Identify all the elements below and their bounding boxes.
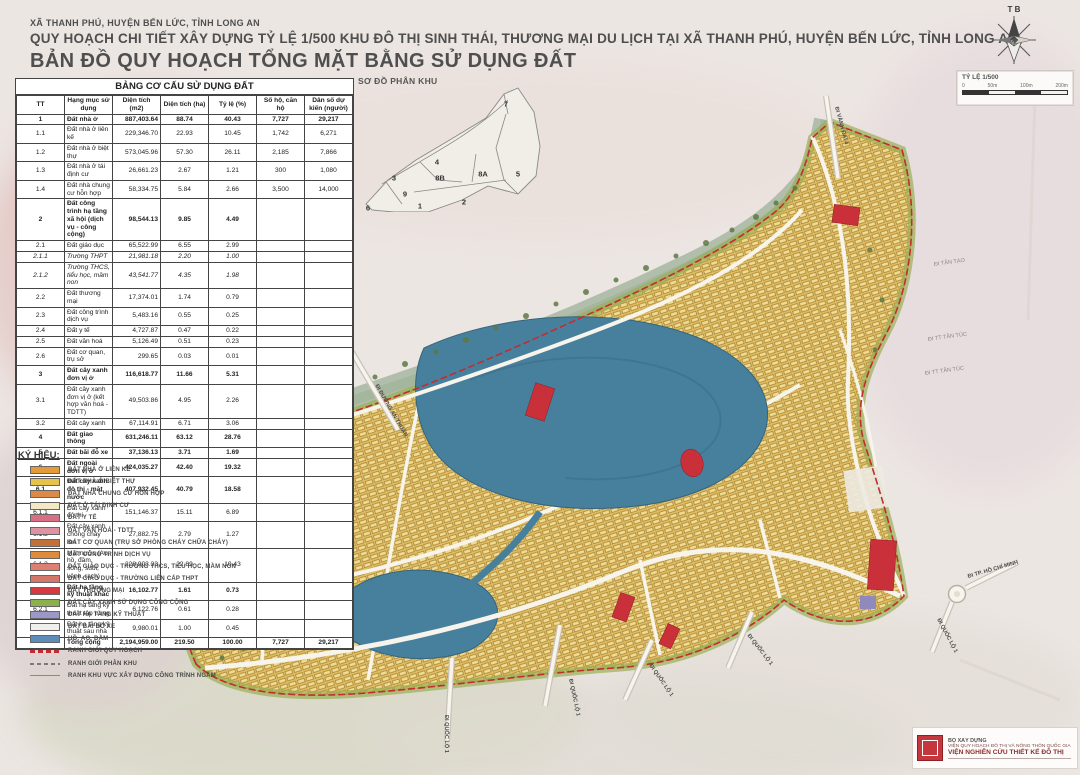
credits-rule (948, 758, 1071, 759)
legend-label: ĐẤT NHÀ Ở BIỆT THỰ (68, 479, 135, 485)
zone-number: 3 (392, 174, 396, 183)
zone-number: 5 (516, 170, 520, 179)
road-label: ĐI QUỐC LỘ 1 (443, 715, 449, 753)
table-cell: 116,618.77 (113, 366, 161, 385)
table-row: 1.3Đất nhà ở tái định cư26,661.232.671.2… (17, 162, 353, 181)
table-cell: Đất giao thông (65, 429, 113, 448)
table-cell: 11.66 (161, 366, 209, 385)
location-line: XÃ THANH PHÚ, HUYỆN BẾN LỨC, TỈNH LONG A… (30, 18, 1070, 28)
legend-line-swatch (30, 660, 60, 668)
table-cell: Đất cơ quan, trụ sở (65, 347, 113, 366)
institute-logo (917, 735, 943, 761)
table-cell: 4.35 (161, 262, 209, 288)
table-cell: 49,503.86 (113, 384, 161, 418)
zone-number: 4 (435, 158, 439, 167)
legend-swatch (30, 611, 60, 619)
table-cell: 2.67 (161, 162, 209, 181)
table-cell (305, 336, 353, 347)
inset-map: 12345678A8B9 (358, 86, 576, 212)
table-row: 2.6Đất cơ quan, trụ sở299.650.030.01 (17, 347, 353, 366)
table-cell (305, 458, 353, 477)
table-cell: 6.71 (161, 418, 209, 429)
table-cell: 0.03 (161, 347, 209, 366)
compass-rose: T B (988, 6, 1040, 66)
table-cell: 40.43 (209, 114, 257, 125)
legend-label: ĐẤT Y TẾ (68, 515, 97, 521)
legend-item: RANH GIỚI QUY HOẠCH (18, 645, 268, 657)
zone-number: 1 (418, 202, 422, 211)
legend-item: HỒ, AO, ĐẦM (18, 633, 268, 645)
legend-label: ĐẤT GIÁO DỤC - TRƯỜNG LIÊN CẤP THPT (68, 576, 198, 582)
table-cell: 1.3 (17, 162, 65, 181)
table-cell (305, 619, 353, 638)
legend-label: ĐẤT GIÁO DỤC - TRƯỜNG THCS, TIỂU HỌC, MẦ… (68, 564, 236, 570)
table-cell: Đất cây xanh đơn vị ở (kết hợp văn hoá -… (65, 384, 113, 418)
legend-item: ĐẤT Y TẾ (18, 512, 268, 524)
table-cell: 3 (17, 366, 65, 385)
table-cell: 3.1 (17, 384, 65, 418)
credits-institute: VIỆN QUY HOẠCH ĐÔ THỊ VÀ NÔNG THÔN QUỐC … (948, 744, 1071, 749)
legend-label: HỒ, AO, ĐẦM (68, 636, 108, 642)
table-cell (257, 384, 305, 418)
legend-item: RANH GIỚI PHÂN KHU (18, 658, 268, 670)
table-cell (305, 601, 353, 620)
table-cell: 5.31 (209, 366, 257, 385)
table-cell: 1,080 (305, 162, 353, 181)
table-row: 2.3Đất công trình dịch vụ5,483.160.550.2… (17, 307, 353, 326)
table-cell: 29,217 (305, 114, 353, 125)
table-cell (257, 252, 305, 263)
legend-label: RANH KHU VỰC XÂY DỰNG CÔNG TRÌNH NGẦM (68, 673, 216, 679)
table-cell (305, 241, 353, 252)
legend-label: RANH GIỚI PHÂN KHU (68, 661, 137, 667)
table-cell: 0.25 (209, 307, 257, 326)
table-cell: 2.20 (161, 252, 209, 263)
table-cell: Đất nhà chung cư hỗn hợp (65, 180, 113, 199)
table-cell (257, 418, 305, 429)
legend-label: ĐẤT BÃI ĐỖ XE (68, 624, 115, 630)
table-cell (305, 429, 353, 448)
title-block: XÃ THANH PHÚ, HUYỆN BẾN LỨC, TỈNH LONG A… (30, 18, 1070, 73)
table-cell: 6.55 (161, 241, 209, 252)
table-row: 4Đất giao thông631,246.1163.1228.76 (17, 429, 353, 448)
table-row: 2.5Đất văn hoá5,126.490.510.23 (17, 336, 353, 347)
planning-map-page: ĐI VÀNH ĐAI 4ĐI ĐƯỜNG AN THUẬNĐI TÂN TẠO… (0, 0, 1080, 775)
table-cell: Trường THPT (65, 252, 113, 263)
table-cell: 2.3 (17, 307, 65, 326)
table-cell: 21,981.18 (113, 252, 161, 263)
column-header: Diện tích (m2) (113, 96, 161, 115)
table-cell: 2.1 (17, 241, 65, 252)
legend-swatch (30, 478, 60, 486)
legend-label: ĐẤT CÂY XANH SỬ DỤNG CÔNG CỘNG (68, 600, 189, 606)
table-cell: 1.2 (17, 143, 65, 162)
table-row: 1.2Đất nhà ở biệt thự573,045.9657.3026.1… (17, 143, 353, 162)
table-row: 3.2Đất cây xanh67,114.916.713.06 (17, 418, 353, 429)
table-cell: 631,246.11 (113, 429, 161, 448)
table-cell: 98,544.13 (113, 199, 161, 241)
table-cell: Đất nhà ở liên kế (65, 125, 113, 144)
legend-label: ĐẤT CÔNG TRÌNH DỊCH VỤ (68, 552, 151, 558)
table-cell: 4 (17, 429, 65, 448)
table-cell: Đất công trình dịch vụ (65, 307, 113, 326)
legend-swatch (30, 490, 60, 498)
table-cell (305, 418, 353, 429)
table-cell (305, 477, 353, 503)
legend-item: ĐẤT CÂY XANH SỬ DỤNG CÔNG CỘNG (18, 597, 268, 609)
table-cell: 1.21 (209, 162, 257, 181)
legend-label: ĐẤT NHÀ Ở LIÊN KẾ (68, 467, 131, 473)
table-cell (305, 347, 353, 366)
table-row: 1.4Đất nhà chung cư hỗn hợp58,334.755.84… (17, 180, 353, 199)
legend-label: ĐẤT CƠ QUAN (TRỤ SỞ PHÒNG CHÁY CHỮA CHÁY… (68, 540, 228, 546)
table-cell: 3,500 (257, 180, 305, 199)
table-cell: 1.74 (161, 289, 209, 308)
table-cell: 10.45 (209, 125, 257, 144)
table-cell: Trường THCS, tiểu học, mầm non (65, 262, 113, 288)
table-row: 2.2Đất thương mại17,374.011.740.79 (17, 289, 353, 308)
table-cell: Đất văn hoá (65, 336, 113, 347)
column-header: TT (17, 96, 65, 115)
legend-item: ĐẤT GIÁO DỤC - TRƯỜNG LIÊN CẤP THPT (18, 573, 268, 585)
table-cell: 4.49 (209, 199, 257, 241)
compass-letters: T B (988, 6, 1040, 14)
legend-item: ĐẤT THƯƠNG MẠI (18, 585, 268, 597)
table-cell: 887,403.64 (113, 114, 161, 125)
zoning-inset: SƠ ĐỒ PHÂN KHU 12345678A8B9 (358, 76, 576, 216)
table-cell: 58,334.75 (113, 180, 161, 199)
legend-item: ĐẤT Ở TÁI ĐỊNH CƯ (18, 500, 268, 512)
table-cell (257, 336, 305, 347)
table-cell: 7,866 (305, 143, 353, 162)
table-cell: Đất cây xanh (65, 418, 113, 429)
table-title: BẢNG CƠ CẤU SỬ DỤNG ĐẤT (16, 79, 353, 95)
zone-number: 9 (403, 190, 407, 199)
table-cell: 14,000 (305, 180, 353, 199)
table-cell (305, 448, 353, 459)
zone-number: 6 (366, 204, 370, 213)
legend-title: KÝ HIỆU: (18, 450, 268, 461)
table-cell (257, 289, 305, 308)
scale-tick: 100m (1020, 83, 1033, 89)
table-cell: 2.99 (209, 241, 257, 252)
legend-swatch (30, 551, 60, 559)
table-cell (305, 503, 353, 522)
table-row: 1Đất nhà ở887,403.6488.7440.437,72729,21… (17, 114, 353, 125)
utility-parcel (860, 596, 876, 609)
table-row: 2Đất công trình hạ tầng xã hội (dịch vụ … (17, 199, 353, 241)
legend-label: RANH GIỚI QUY HOẠCH (68, 648, 142, 654)
table-cell: 229,346.70 (113, 125, 161, 144)
legend-swatch (30, 539, 60, 547)
table-cell (257, 429, 305, 448)
table-cell: Đất nhà ở biệt thự (65, 143, 113, 162)
legend-label: ĐẤT HẠ TẦNG KỸ THUẬT (68, 612, 145, 618)
table-cell: 63.12 (161, 429, 209, 448)
legend-item: ĐẤT NHÀ Ở LIÊN KẾ (18, 464, 268, 476)
legend-item: ĐẤT CƠ QUAN (TRỤ SỞ PHÒNG CHÁY CHỮA CHÁY… (18, 537, 268, 549)
table-cell: 0.23 (209, 336, 257, 347)
scale-box: TỶ LỆ 1/500 050m100m200m (956, 70, 1074, 106)
table-cell (305, 384, 353, 418)
map-title: BẢN ĐỒ QUY HOẠCH TỔNG MẶT BẰNG SỬ DỤNG Đ… (30, 50, 1070, 73)
legend-item: ĐẤT VĂN HOÁ - TDTT (18, 524, 268, 536)
table-cell: 26.11 (209, 143, 257, 162)
table-cell: 2.1.2 (17, 262, 65, 288)
scale-tick: 200m (1055, 83, 1068, 89)
table-cell: 1 (17, 114, 65, 125)
table-cell: 57.30 (161, 143, 209, 162)
table-cell: Đất công trình hạ tầng xã hội (dịch vụ -… (65, 199, 113, 241)
legend-label: ĐẤT THƯƠNG MẠI (68, 588, 125, 594)
table-cell: Đất nhà ở (65, 114, 113, 125)
table-cell: Đất nhà ở tái định cư (65, 162, 113, 181)
table-cell (257, 326, 305, 337)
credits-block: BỘ XÂY DỰNG VIỆN QUY HOẠCH ĐÔ THỊ VÀ NÔN… (912, 727, 1078, 769)
table-cell: 5,126.49 (113, 336, 161, 347)
table-cell (305, 326, 353, 337)
table-cell: 6,271 (305, 125, 353, 144)
legend-item: ĐẤT HẠ TẦNG KỸ THUẬT (18, 609, 268, 621)
table-cell: 2,185 (257, 143, 305, 162)
table-cell (257, 307, 305, 326)
table-cell: 2.1.1 (17, 252, 65, 263)
table-row: 3Đất cây xanh đơn vị ở116,618.7711.665.3… (17, 366, 353, 385)
column-header: Tỷ lệ (%) (209, 96, 257, 115)
table-cell: 0.79 (209, 289, 257, 308)
table-cell: Đất cây xanh đơn vị ở (65, 366, 113, 385)
table-cell: 5,483.16 (113, 307, 161, 326)
table-cell: 65,522.99 (113, 241, 161, 252)
scale-title: TỶ LỆ 1/500 (962, 74, 1068, 81)
table-cell: Đất giáo dục (65, 241, 113, 252)
legend-label: ĐẤT NHÀ CHUNG CƯ HỖN HỢP (68, 491, 165, 497)
table-header: TTHạng mục sử dụngDiện tích (m2)Diện tíc… (17, 96, 353, 115)
column-header: Số hộ, căn hộ (257, 96, 305, 115)
column-header: Hạng mục sử dụng (65, 96, 113, 115)
table-row: 3.1Đất cây xanh đơn vị ở (kết hợp văn ho… (17, 384, 353, 418)
table-cell: 7,727 (257, 114, 305, 125)
scale-bar (962, 90, 1068, 95)
table-row: 2.1Đất giáo dục65,522.996.552.99 (17, 241, 353, 252)
legend-item: ĐẤT GIÁO DỤC - TRƯỜNG THCS, TIỂU HỌC, MẦ… (18, 561, 268, 573)
column-header: Diện tích (ha) (161, 96, 209, 115)
table-cell: 4.95 (161, 384, 209, 418)
table-row: 1.1Đất nhà ở liên kế229,346.7022.9310.45… (17, 125, 353, 144)
legend-swatch (30, 575, 60, 583)
table-cell (305, 262, 353, 288)
table-cell (305, 548, 353, 582)
scale-tick: 0 (962, 83, 965, 89)
legend-swatch (30, 623, 60, 631)
table-cell (305, 252, 353, 263)
table-cell: 29,217 (305, 638, 353, 649)
table-cell: 67,114.91 (113, 418, 161, 429)
legend: KÝ HIỆU: ĐẤT NHÀ Ở LIÊN KẾĐẤT NHÀ Ở BIỆT… (18, 450, 268, 682)
table-cell (305, 307, 353, 326)
project-title: QUY HOẠCH CHI TIẾT XÂY DỰNG TỶ LỆ 1/500 … (30, 31, 1070, 46)
north-arrow-icon (988, 14, 1040, 66)
legend-swatch (30, 466, 60, 474)
table-cell: 28.76 (209, 429, 257, 448)
table-cell: 2 (17, 199, 65, 241)
table-cell (305, 366, 353, 385)
table-cell: 1,742 (257, 125, 305, 144)
legend-swatch (30, 514, 60, 522)
legend-label: ĐẤT VĂN HOÁ - TDTT (68, 528, 134, 534)
table-cell: 2.6 (17, 347, 65, 366)
table-cell (305, 522, 353, 548)
table-cell: 2.4 (17, 326, 65, 337)
table-row: 2.1.1Trường THPT21,981.182.201.00 (17, 252, 353, 263)
table-cell: 1.98 (209, 262, 257, 288)
legend-item: ĐẤT NHÀ Ở BIỆT THỰ (18, 476, 268, 488)
legend-item: RANH KHU VỰC XÂY DỰNG CÔNG TRÌNH NGẦM (18, 670, 268, 682)
table-cell (305, 289, 353, 308)
table-cell: 0.51 (161, 336, 209, 347)
table-cell: 2.5 (17, 336, 65, 347)
zone-number: 8A (478, 170, 488, 179)
table-cell: 1.1 (17, 125, 65, 144)
legend-swatch (30, 563, 60, 571)
table-cell: 3.06 (209, 418, 257, 429)
scale-tick: 50m (988, 83, 998, 89)
table-cell: 299.65 (113, 347, 161, 366)
table-cell: 2.2 (17, 289, 65, 308)
table-cell: Đất y tế (65, 326, 113, 337)
table-cell (257, 241, 305, 252)
scale-ticks: 050m100m200m (962, 83, 1068, 89)
table-row: 2.1.2Trường THCS, tiểu học, mầm non43,54… (17, 262, 353, 288)
table-cell (257, 347, 305, 366)
zone-number: 8B (435, 174, 445, 183)
table-cell (305, 582, 353, 601)
table-cell: 0.47 (161, 326, 209, 337)
table-cell: 1.4 (17, 180, 65, 199)
legend-swatch (30, 587, 60, 595)
inset-sketch (358, 86, 576, 212)
table-cell: 9.85 (161, 199, 209, 241)
table-cell: 0.55 (161, 307, 209, 326)
table-cell (305, 199, 353, 241)
table-cell (257, 199, 305, 241)
table-cell: 26,661.23 (113, 162, 161, 181)
legend-swatch (30, 527, 60, 535)
table-cell: 3.2 (17, 418, 65, 429)
legend-item: ĐẤT BÃI ĐỖ XE (18, 621, 268, 633)
table-cell: 2.66 (209, 180, 257, 199)
table-cell: 4,727.87 (113, 326, 161, 337)
zone-number: 2 (462, 198, 466, 207)
legend-swatch (30, 502, 60, 510)
table-cell: 1.00 (209, 252, 257, 263)
column-header: Dân số dự kiến (người) (305, 96, 353, 115)
table-cell: 2.26 (209, 384, 257, 418)
legend-label: ĐẤT Ở TÁI ĐỊNH CƯ (68, 503, 129, 509)
table-cell (257, 366, 305, 385)
parking-parcel (843, 465, 888, 512)
table-cell: Đất thương mại (65, 289, 113, 308)
legend-line-swatch (30, 647, 60, 655)
table-cell: 300 (257, 162, 305, 181)
table-cell (257, 262, 305, 288)
table-cell: 88.74 (161, 114, 209, 125)
table-cell: 17,374.01 (113, 289, 161, 308)
credits-design-institute: VIỆN NGHIÊN CỨU THIẾT KẾ ĐÔ THỊ (948, 749, 1071, 756)
inset-title: SƠ ĐỒ PHÂN KHU (358, 76, 576, 86)
table-cell: 43,541.77 (113, 262, 161, 288)
legend-item: ĐẤT NHÀ CHUNG CƯ HỖN HỢP (18, 488, 268, 500)
table-row: 2.4Đất y tế4,727.870.470.22 (17, 326, 353, 337)
table-cell: 0.01 (209, 347, 257, 366)
zone-number: 7 (504, 100, 508, 109)
legend-swatch (30, 635, 60, 643)
legend-item: ĐẤT CÔNG TRÌNH DỊCH VỤ (18, 549, 268, 561)
legend-line-swatch (30, 672, 60, 680)
table-cell: 22.93 (161, 125, 209, 144)
table-cell: 0.22 (209, 326, 257, 337)
table-cell: 5.84 (161, 180, 209, 199)
table-cell: 573,045.96 (113, 143, 161, 162)
legend-swatch (30, 599, 60, 607)
